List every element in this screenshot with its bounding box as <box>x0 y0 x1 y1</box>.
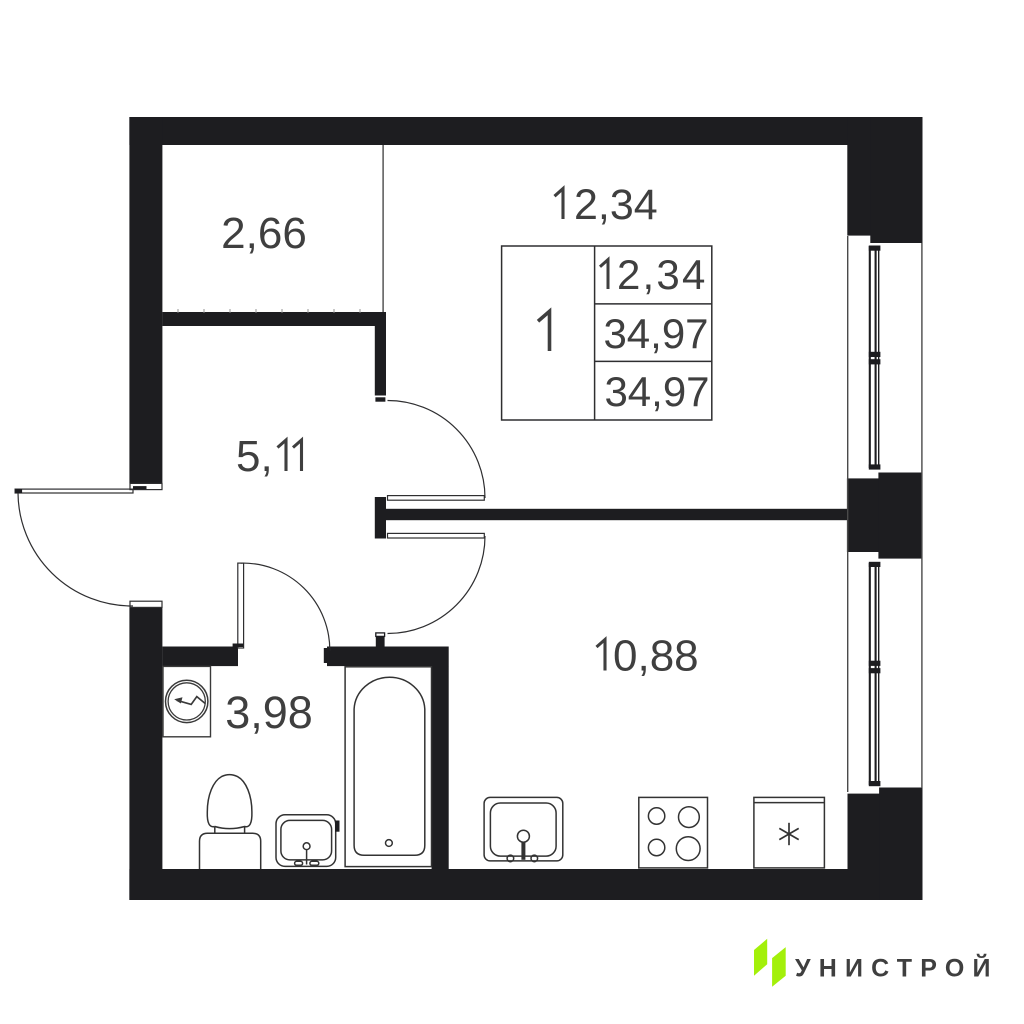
svg-text:34,97: 34,97 <box>603 310 708 357</box>
svg-text:УНИСТРОЙ: УНИСТРОЙ <box>795 953 999 983</box>
svg-text:34,97: 34,97 <box>604 368 709 415</box>
svg-text:2,66: 2,66 <box>221 209 307 258</box>
svg-text:2,34: 2,34 <box>574 181 658 229</box>
svg-text:0,88: 0,88 <box>613 632 699 681</box>
svg-text:5,: 5, <box>236 432 273 481</box>
svg-text:2,34: 2,34 <box>617 251 708 298</box>
svg-text:3,98: 3,98 <box>225 687 313 738</box>
